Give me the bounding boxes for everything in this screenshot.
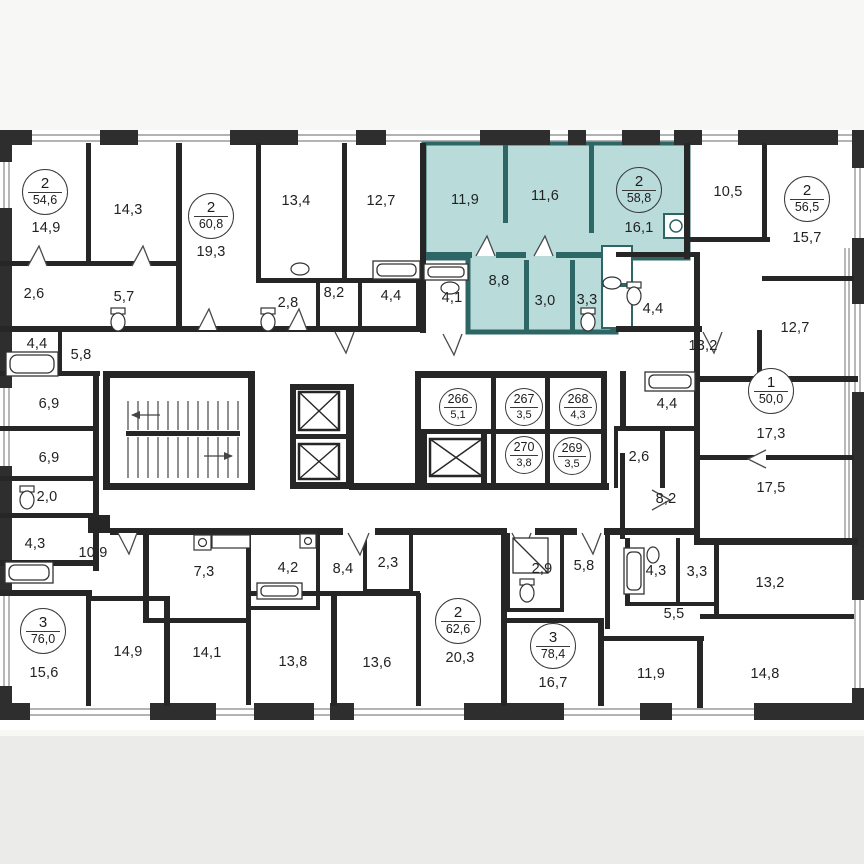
room-area-label: 10,9 xyxy=(78,545,107,561)
room-area-label: 15,6 xyxy=(29,665,58,681)
apartment-badge[interactable]: 2 60,8 xyxy=(188,193,234,239)
floor-plan-page: 14,9 14,3 19,3 13,4 12,7 11,9 11,6 16,1 … xyxy=(0,0,864,864)
room-area-label: 3,0 xyxy=(535,293,556,309)
room-area-label: 14,1 xyxy=(192,645,221,661)
room-area-label: 4,2 xyxy=(278,560,299,576)
room-area-label: 5,5 xyxy=(664,606,685,622)
room-area-label: 6,9 xyxy=(39,450,60,466)
room-area-label: 7,3 xyxy=(194,564,215,580)
room-area-label: 13,2 xyxy=(688,338,717,354)
apartment-rooms-count: 3 xyxy=(536,630,569,648)
apartment-rooms-count: 2 xyxy=(790,183,823,201)
room-area-label: 13,4 xyxy=(281,193,310,209)
apartment-badge[interactable]: 2 56,5 xyxy=(784,176,830,222)
unit-number: 267 xyxy=(510,393,537,408)
unit-badge[interactable]: 267 3,5 xyxy=(505,388,543,426)
unit-area: 4,3 xyxy=(570,408,585,421)
unit-area: 3,5 xyxy=(564,457,579,470)
apartment-area: 54,6 xyxy=(33,193,57,208)
room-area-label: 14,8 xyxy=(750,666,779,682)
room-area-label: 4,3 xyxy=(646,563,667,579)
unit-badge[interactable]: 270 3,8 xyxy=(505,436,543,474)
apartment-rooms-count: 3 xyxy=(26,615,59,633)
unit-number: 266 xyxy=(444,393,471,408)
apartment-area: 62,6 xyxy=(446,622,470,637)
apartment-badge[interactable]: 1 50,0 xyxy=(748,368,794,414)
unit-number: 269 xyxy=(558,442,585,457)
apartment-badge[interactable]: 2 62,6 xyxy=(435,598,481,644)
room-area-label: 5,8 xyxy=(71,347,92,363)
apartment-rooms-count: 2 xyxy=(622,174,655,192)
apartment-badge-highlighted[interactable]: 2 58,8 xyxy=(616,167,662,213)
room-area-label: 13,2 xyxy=(755,575,784,591)
room-area-label: 2,6 xyxy=(629,449,650,465)
room-area-label: 4,4 xyxy=(657,396,678,412)
room-area-label: 17,5 xyxy=(756,480,785,496)
unit-number: 268 xyxy=(564,393,591,408)
apartment-area: 78,4 xyxy=(541,647,565,662)
room-area-label: 2,8 xyxy=(278,295,299,311)
room-area-label: 8,2 xyxy=(656,491,677,507)
room-area-label: 5,7 xyxy=(114,289,135,305)
room-area-label: 4,4 xyxy=(381,288,402,304)
room-area-label: 2,6 xyxy=(24,286,45,302)
floor-plan-drawing xyxy=(0,0,864,864)
apartment-rooms-count: 2 xyxy=(194,200,227,218)
apartment-area: 76,0 xyxy=(31,632,55,647)
room-area-label: 2,0 xyxy=(37,489,58,505)
room-area-label: 5,8 xyxy=(574,558,595,574)
apartment-rooms-count: 2 xyxy=(441,605,474,623)
room-area-label: 3,3 xyxy=(577,292,598,308)
room-area-label: 2,9 xyxy=(532,561,553,577)
room-area-label: 8,4 xyxy=(333,561,354,577)
room-area-label: 4,1 xyxy=(442,290,463,306)
room-area-label: 16,1 xyxy=(624,220,653,236)
apartment-rooms-count: 1 xyxy=(754,375,787,393)
room-area-label: 11,9 xyxy=(451,192,479,208)
room-area-label: 12,7 xyxy=(366,193,395,209)
room-area-label: 16,7 xyxy=(538,675,567,691)
room-area-label: 13,6 xyxy=(362,655,391,671)
unit-badge[interactable]: 268 4,3 xyxy=(559,388,597,426)
room-area-label: 10,5 xyxy=(713,184,742,200)
apartment-area: 50,0 xyxy=(759,392,783,407)
room-area-label: 8,8 xyxy=(489,273,510,289)
apartment-badge[interactable]: 3 76,0 xyxy=(20,608,66,654)
apartment-area: 58,8 xyxy=(627,191,651,206)
unit-area: 3,8 xyxy=(516,456,531,469)
apartment-area: 60,8 xyxy=(199,217,223,232)
room-area-label: 4,4 xyxy=(643,301,664,317)
room-area-label: 19,3 xyxy=(196,244,225,260)
room-area-label: 11,9 xyxy=(637,666,665,682)
room-area-label: 13,8 xyxy=(278,654,307,670)
bottom-margin-strip xyxy=(0,736,864,864)
apartment-badge[interactable]: 2 54,6 xyxy=(22,169,68,215)
room-area-label: 6,9 xyxy=(39,396,60,412)
room-area-label: 12,7 xyxy=(780,320,809,336)
apartment-badge[interactable]: 3 78,4 xyxy=(530,623,576,669)
unit-area: 3,5 xyxy=(516,408,531,421)
unit-badge[interactable]: 269 3,5 xyxy=(553,437,591,475)
room-area-label: 15,7 xyxy=(792,230,821,246)
room-area-label: 14,9 xyxy=(113,644,142,660)
room-area-label: 4,3 xyxy=(25,536,46,552)
room-area-label: 4,4 xyxy=(27,336,48,352)
apartment-area: 56,5 xyxy=(795,200,819,215)
room-area-label: 14,9 xyxy=(31,220,60,236)
unit-badge[interactable]: 266 5,1 xyxy=(439,388,477,426)
unit-number: 270 xyxy=(510,441,537,456)
room-area-label: 17,3 xyxy=(756,426,785,442)
room-area-label: 2,3 xyxy=(378,555,399,571)
room-area-label: 20,3 xyxy=(445,650,474,666)
room-area-label: 3,3 xyxy=(687,564,708,580)
unit-area: 5,1 xyxy=(450,408,465,421)
room-area-label: 14,3 xyxy=(113,202,142,218)
room-area-label: 11,6 xyxy=(531,188,559,204)
apartment-rooms-count: 2 xyxy=(28,176,61,194)
room-area-label: 8,2 xyxy=(324,285,345,301)
